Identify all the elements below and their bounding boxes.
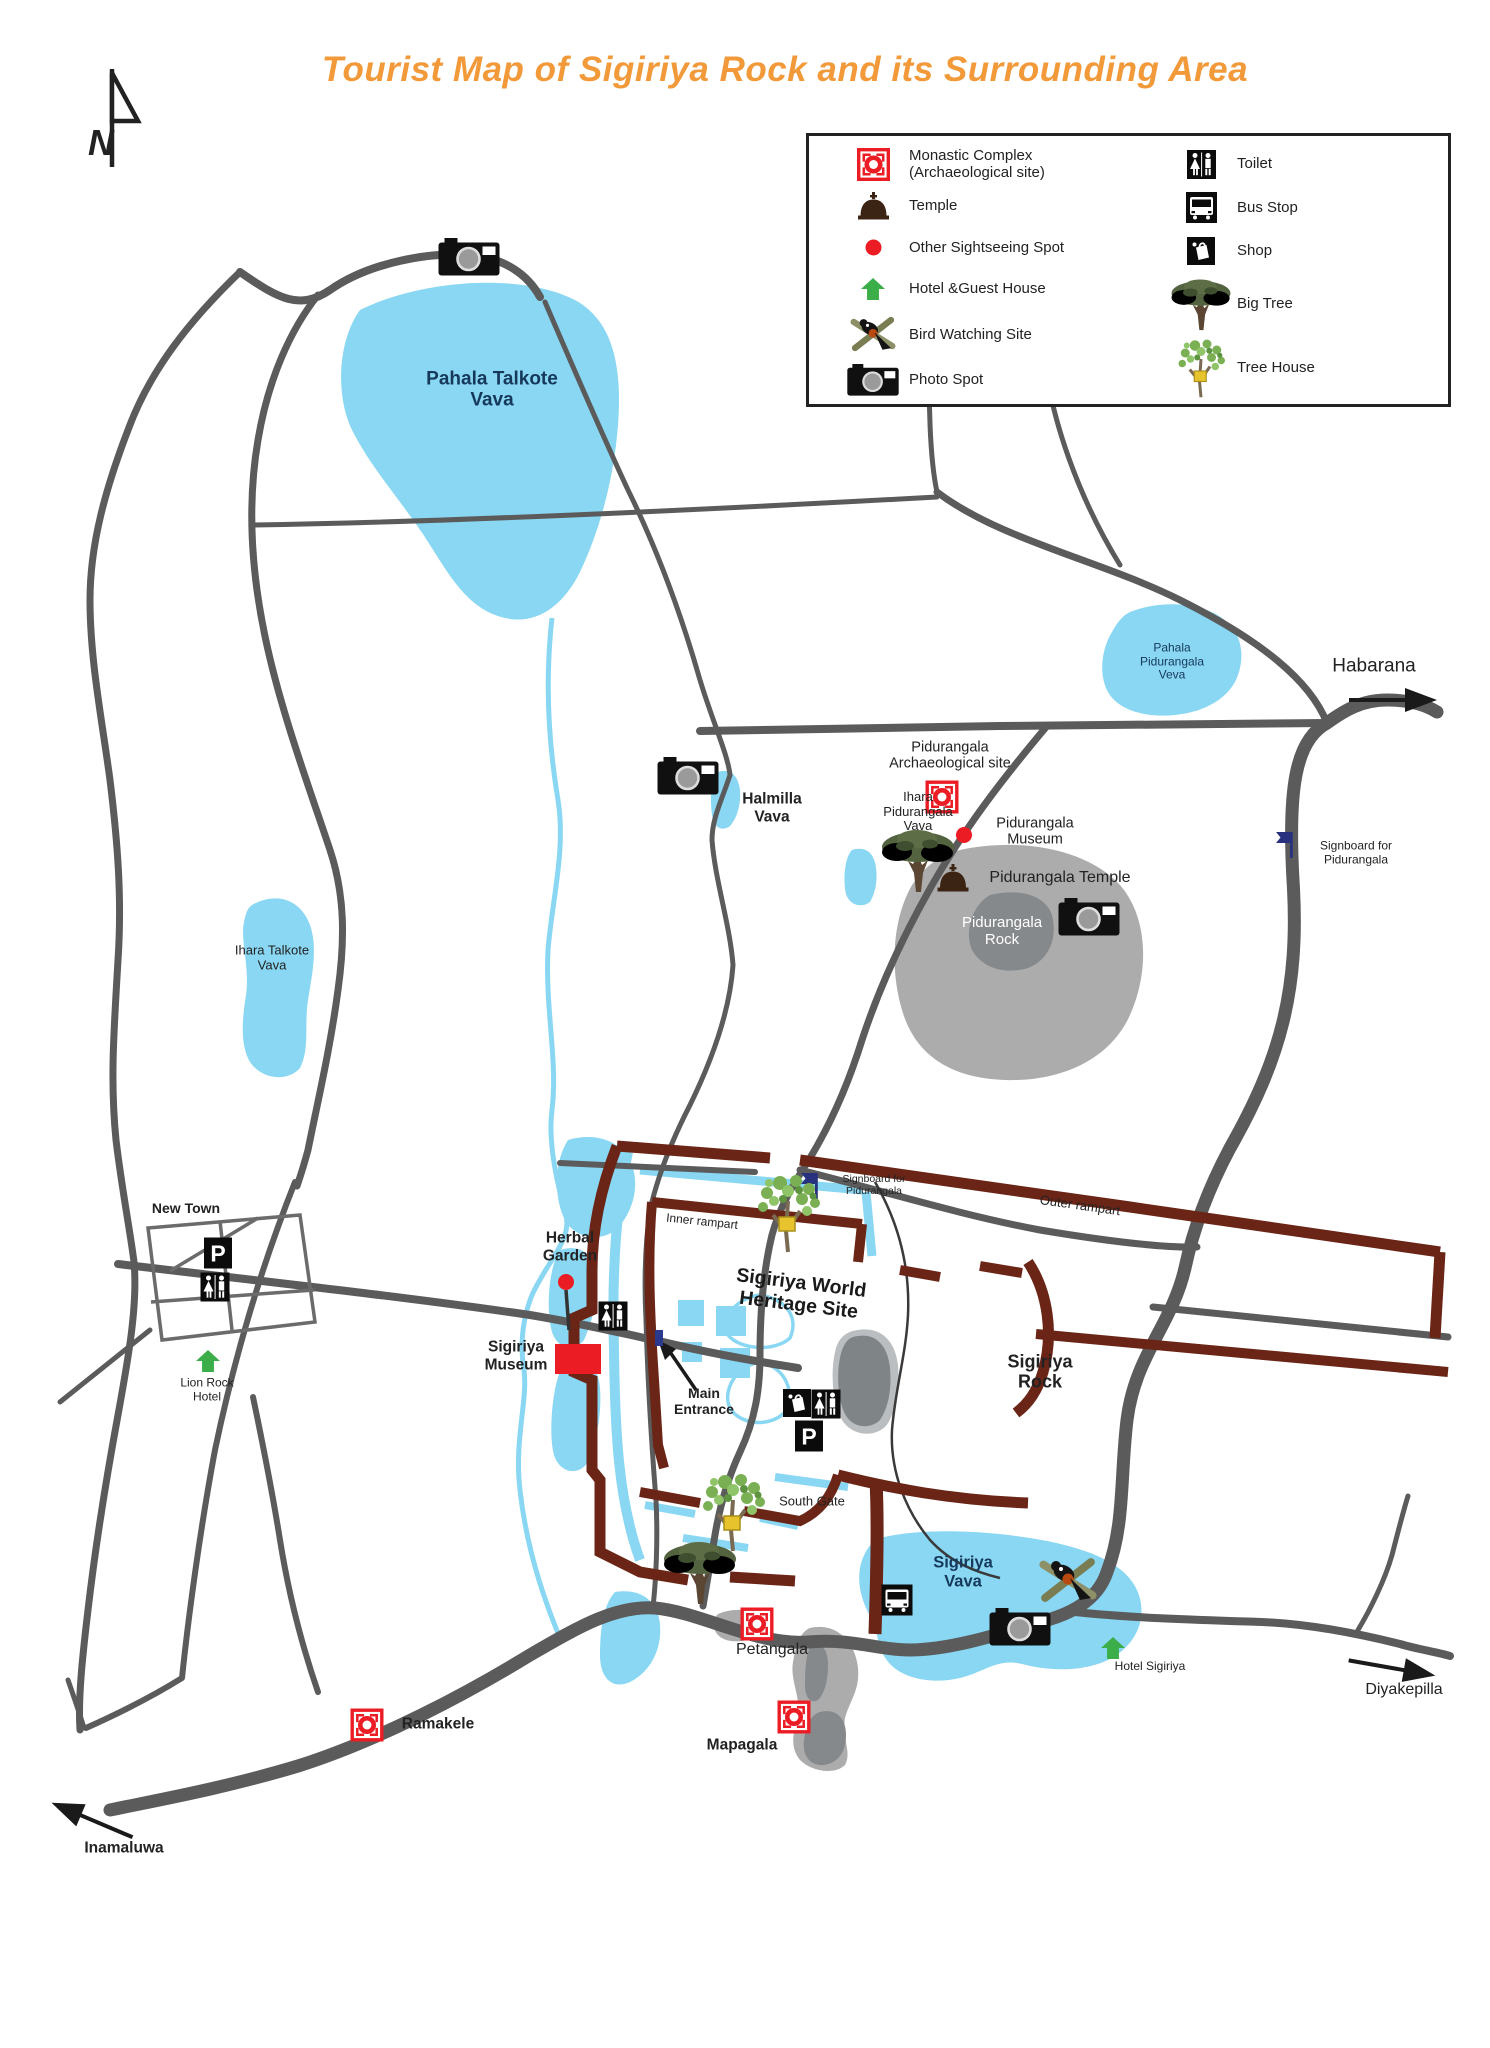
signboard-for-pidurangala-east-label: Signboard for Pidurangala bbox=[1320, 839, 1392, 866]
road-far-left bbox=[79, 272, 240, 1730]
pidurangala-temple-label: Pidurangala Temple bbox=[989, 869, 1130, 887]
road-new-town-southwest bbox=[60, 1330, 150, 1402]
bird-watching-icon bbox=[837, 312, 909, 356]
pahala-talkote-vava-label: Pahala Talkote Vava bbox=[426, 369, 558, 412]
legend-label: Bird Watching Site bbox=[909, 326, 1032, 343]
lion-rock-hotel-label: Lion Rock Hotel bbox=[180, 1376, 233, 1403]
toilet-central-icon bbox=[812, 1390, 841, 1419]
legend-column-right: ToiletBus StopShopBig TreeTree House bbox=[1165, 146, 1435, 398]
ihara-talkote-vava-label: Ihara Talkote Vava bbox=[235, 943, 309, 972]
bird-watching-site-icon bbox=[1039, 1552, 1097, 1608]
rampart-inner-bottom-1 bbox=[640, 1492, 700, 1503]
legend-item: Big Tree bbox=[1165, 277, 1435, 331]
moat-south-band-1 bbox=[645, 1505, 695, 1514]
rampart-inner-northeast bbox=[858, 1224, 862, 1262]
monastic-ramakele-icon bbox=[351, 1709, 384, 1742]
bus-stop-icon bbox=[1165, 192, 1237, 223]
water-square-1 bbox=[678, 1300, 704, 1326]
ramakele-label: Ramakele bbox=[402, 1715, 474, 1733]
hotel-lion-rock-icon bbox=[196, 1350, 220, 1372]
inamaluwa-label: Inamaluwa bbox=[84, 1839, 163, 1857]
sigiriya-rock-inner bbox=[838, 1336, 890, 1427]
rampart-outer-south-gap bbox=[730, 1577, 795, 1581]
monastic-icon bbox=[837, 148, 909, 181]
svg-text:P: P bbox=[210, 1241, 225, 1267]
sigiriya-rock-label: Sigiriya Rock bbox=[1007, 1352, 1072, 1393]
toilet-new-town-icon bbox=[201, 1273, 230, 1302]
parking-central-icon: P bbox=[795, 1421, 823, 1452]
water-square-2 bbox=[716, 1306, 746, 1336]
tree-house-north-gate-icon bbox=[755, 1173, 821, 1253]
north-arrow-icon: N bbox=[81, 65, 143, 171]
main-entrance-label: Main Entrance bbox=[674, 1386, 734, 1418]
arrow-to-habarana-icon bbox=[1347, 685, 1439, 715]
water-garden-squares bbox=[678, 1300, 750, 1378]
grid-line-3 bbox=[151, 1290, 314, 1302]
legend-label: Monastic Complex (Archaeological site) bbox=[909, 147, 1045, 182]
rampart-dash-1 bbox=[980, 1266, 1022, 1273]
new-town-label: New Town bbox=[152, 1201, 220, 1217]
lake-ihara-talkote bbox=[243, 898, 314, 1077]
rampart-outer-right bbox=[1435, 1252, 1440, 1338]
legend-item: Photo Spot bbox=[837, 362, 1137, 398]
petangala-label: Petangala bbox=[736, 1641, 808, 1659]
pidurangala-rock-label: Pidurangala Rock bbox=[962, 915, 1042, 949]
sightseeing-dot-icon bbox=[837, 239, 909, 256]
parking-new-town-icon: P bbox=[204, 1238, 232, 1269]
rampart-dash-2 bbox=[900, 1270, 940, 1277]
rampart-east-long bbox=[1036, 1334, 1448, 1372]
tourist-map: Tourist Map of Sigiriya Rock and its Sur… bbox=[0, 0, 1490, 2048]
legend-label: Big Tree bbox=[1237, 295, 1293, 312]
legend-label: Temple bbox=[909, 197, 957, 214]
toilet-west-gate-icon bbox=[599, 1302, 628, 1331]
rampart-south-vertical bbox=[875, 1480, 877, 1634]
herbal-garden-label: Herbal Garden bbox=[543, 1230, 597, 1265]
stream bbox=[518, 618, 566, 1638]
legend: Monastic Complex (Archaeological site)Te… bbox=[806, 133, 1451, 407]
south-gate-label: South Gate bbox=[779, 1495, 845, 1510]
moat-northeast-band bbox=[866, 1192, 872, 1256]
camera-icon bbox=[837, 364, 909, 396]
svg-text:N: N bbox=[88, 122, 115, 163]
legend-item: Temple bbox=[837, 188, 1137, 224]
photo-spot-pahala-talkote-icon bbox=[439, 238, 500, 276]
sigiriya-museum-label: Sigiriya Museum bbox=[485, 1339, 548, 1374]
legend-item: Shop bbox=[1165, 233, 1435, 269]
toilet-icon bbox=[1165, 150, 1237, 179]
legend-item: Toilet bbox=[1165, 146, 1435, 182]
tree-house-icon bbox=[1165, 338, 1237, 398]
rampart-southeast bbox=[838, 1475, 1028, 1503]
lake-pahala-talkote bbox=[341, 283, 619, 620]
big-tree-ihara-pidurangala-icon bbox=[879, 827, 957, 893]
legend-item: Other Sightseeing Spot bbox=[837, 229, 1137, 265]
photo-spot-sigiriya-vava-icon bbox=[990, 1608, 1051, 1646]
temple-icon bbox=[837, 192, 909, 220]
road-mid-horizontal bbox=[700, 723, 1327, 731]
legend-label: Toilet bbox=[1237, 155, 1272, 172]
shop-icon bbox=[1165, 237, 1237, 265]
road-diyakepilla-branch-up bbox=[1358, 1496, 1408, 1630]
legend-item: Hotel &Guest House bbox=[837, 271, 1137, 307]
habarana-label: Habarana bbox=[1332, 655, 1415, 676]
legend-item: Bird Watching Site bbox=[837, 312, 1137, 356]
big-tree-icon bbox=[1165, 277, 1237, 331]
hotel-arrow-icon bbox=[837, 278, 909, 300]
sightseeing-pidurangala-museum-icon bbox=[956, 827, 973, 844]
pidurangala-archaeological-site-label: Pidurangala Archaeological site bbox=[889, 740, 1011, 773]
monastic-petangala-icon bbox=[741, 1608, 774, 1641]
legend-column-left: Monastic Complex (Archaeological site)Te… bbox=[837, 146, 1137, 398]
photo-spot-pidurangala-icon bbox=[1059, 898, 1120, 936]
pidurangala-museum-label: Pidurangala Museum bbox=[996, 816, 1073, 849]
main-entrance-gate-icon bbox=[655, 1330, 663, 1346]
road-east-spur bbox=[1153, 1307, 1448, 1337]
mapagala-label: Mapagala bbox=[707, 1736, 778, 1754]
legend-label: Other Sightseeing Spot bbox=[909, 239, 1064, 256]
road-new-town-diag-2 bbox=[253, 1397, 318, 1692]
legend-item: Tree House bbox=[1165, 338, 1435, 398]
legend-label: Bus Stop bbox=[1237, 199, 1298, 216]
hotel-sigiriya-label: Hotel Sigiriya bbox=[1115, 1660, 1186, 1674]
legend-label: Shop bbox=[1237, 242, 1272, 259]
diyakepilla-label: Diyakepilla bbox=[1365, 1681, 1442, 1699]
ihara-pidurangala-vava-label: Ihara Pidurangala Vava bbox=[883, 790, 952, 834]
monastic-mapagala-icon bbox=[778, 1701, 811, 1734]
tree-house-south-gate-icon bbox=[700, 1472, 766, 1552]
rampart-outer-top-left bbox=[617, 1146, 770, 1158]
svg-text:P: P bbox=[801, 1424, 816, 1450]
pahala-pidurangala-veva-label: Pahala Pidurangala Veva bbox=[1140, 642, 1204, 683]
legend-label: Photo Spot bbox=[909, 371, 983, 388]
bus-stop-sigiriya-icon bbox=[882, 1585, 913, 1616]
legend-label: Hotel &Guest House bbox=[909, 280, 1046, 297]
sigiriya-vava-label: Sigiriya Vava bbox=[933, 1553, 993, 1590]
signboard-flag-east-icon bbox=[1275, 830, 1299, 860]
shop-central-icon bbox=[783, 1389, 811, 1417]
legend-item: Monastic Complex (Archaeological site) bbox=[837, 146, 1137, 182]
signboard-for-pidurangala-complex-label: Signboard for Pidurangala bbox=[842, 1174, 905, 1198]
halmilla-vava-label: Halmilla Vava bbox=[742, 791, 801, 826]
hotel-sigiriya-icon bbox=[1101, 1637, 1125, 1659]
legend-item: Bus Stop bbox=[1165, 190, 1435, 226]
photo-spot-halmilla-icon bbox=[658, 757, 719, 795]
sigiriya-museum-building-icon bbox=[555, 1344, 601, 1374]
sightseeing-herbal-garden-icon bbox=[558, 1274, 575, 1291]
lake-ihara-pidurangala bbox=[844, 849, 876, 905]
legend-label: Tree House bbox=[1237, 359, 1315, 376]
